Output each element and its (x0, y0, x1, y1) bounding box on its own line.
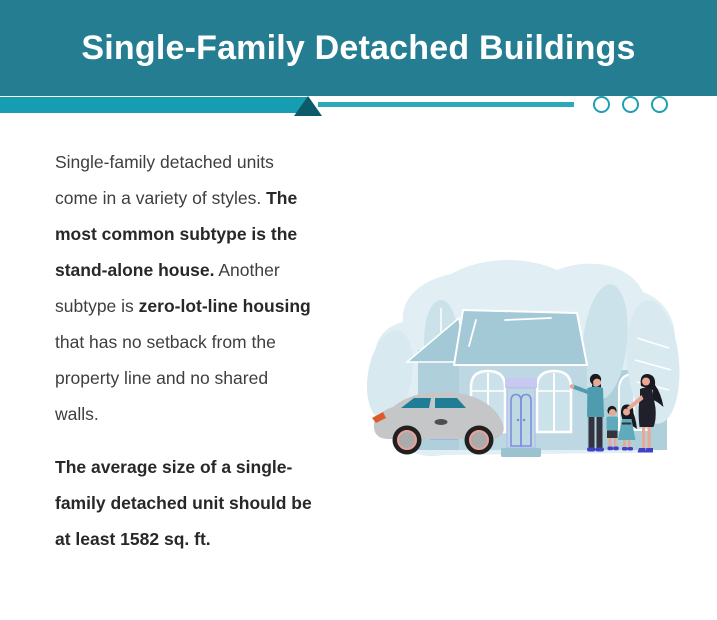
door-handle (435, 419, 448, 425)
family-house-illustration (355, 250, 715, 465)
wheel (393, 426, 422, 455)
illustration-svg (355, 250, 715, 465)
body-text: Single-family detached unitscome in a va… (55, 144, 335, 574)
front-door (501, 378, 541, 457)
divider-line (318, 102, 574, 107)
page-title: Single-Family Detached Buildings (81, 29, 635, 68)
circle-icon (593, 96, 610, 113)
paragraph: Single-family detached unitscome in a va… (55, 144, 335, 432)
arched-window (537, 371, 571, 432)
section-divider (0, 0, 717, 30)
circle-icon (651, 96, 668, 113)
slide-page: Single-Family Detached Buildings Single-… (0, 0, 717, 620)
divider-bar (0, 97, 308, 113)
divider-circles (593, 96, 668, 113)
paragraph: The average size of a single-family deta… (55, 449, 335, 557)
circle-icon (622, 96, 639, 113)
wheel (465, 426, 494, 455)
